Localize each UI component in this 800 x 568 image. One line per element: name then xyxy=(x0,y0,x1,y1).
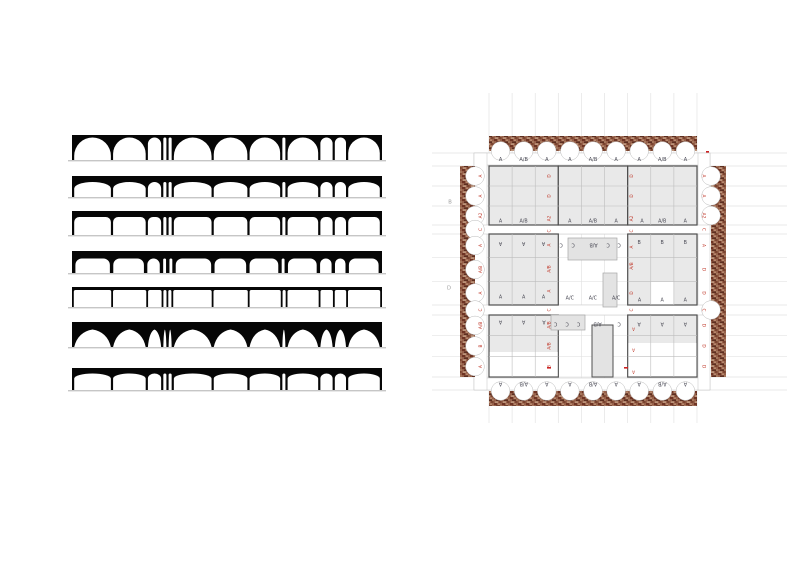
plan-label: A2 xyxy=(701,213,707,219)
plan-label: A xyxy=(478,174,484,177)
arch-opening xyxy=(335,259,346,274)
plan-label: A/C xyxy=(566,296,575,302)
plan-label: D xyxy=(447,286,451,292)
arch-opening xyxy=(74,374,111,391)
plan-label: A xyxy=(632,326,635,332)
plan-label: C xyxy=(478,308,484,311)
red-mark xyxy=(624,367,628,369)
floor-plan: AA/BAAA/BAAA/BAAA/BAAA/BAAA/BAAAA2CAA/BA… xyxy=(430,85,790,435)
arch-opening xyxy=(163,374,166,390)
arch-opening xyxy=(148,182,161,197)
arch-opening xyxy=(148,217,161,235)
arch-opening xyxy=(320,290,332,307)
strip-baseline xyxy=(68,307,386,308)
arch-opening xyxy=(148,374,161,391)
arch-profile-strip-6-tented-arches xyxy=(68,322,386,350)
arch-opening xyxy=(213,290,247,307)
arch-opening xyxy=(163,182,166,197)
room-white-area xyxy=(490,352,558,376)
arch-opening xyxy=(113,290,146,307)
plan-label: B xyxy=(661,240,664,246)
plan-label: A/B xyxy=(589,242,597,248)
plan-label: A/B xyxy=(588,381,597,387)
arch-opening xyxy=(168,290,171,307)
arch-opening xyxy=(348,374,380,390)
plan-label: A xyxy=(629,245,635,248)
plan-label: C xyxy=(701,228,707,231)
plan-label: C xyxy=(547,229,553,232)
arch-profile-strip-5-trabeated-lintel xyxy=(68,287,386,310)
plan-label: A/B xyxy=(657,381,666,387)
arch-opening xyxy=(348,182,380,197)
arch-opening xyxy=(163,217,166,235)
arch-opening xyxy=(163,290,166,307)
arch-opening xyxy=(214,374,248,391)
arch-opening xyxy=(320,217,332,235)
diagram-canvas: AA/BAAA/BAAA/BAAA/BAAA/BAAA/BAAAA2CAA/BA… xyxy=(0,0,800,568)
plan-label: A xyxy=(701,195,707,198)
plan-label: A/B xyxy=(478,322,484,329)
arch-profile-strip-3-segmental-arches xyxy=(68,211,386,238)
plan-label: A xyxy=(568,157,572,163)
plan-label: A/B xyxy=(519,219,527,225)
courtyard-structure xyxy=(603,273,617,307)
plan-label: A/C xyxy=(589,296,598,302)
strip-baseline xyxy=(68,390,386,391)
plan-label: B xyxy=(637,240,640,246)
arch-profile-strip-1-semicircular-arches xyxy=(68,135,386,163)
arch-opening xyxy=(174,217,212,235)
plan-label: A xyxy=(701,175,707,178)
plan-label: A/B xyxy=(478,266,484,273)
room-white-area xyxy=(628,343,696,376)
arch-opening xyxy=(169,182,172,197)
arch-opening xyxy=(75,259,109,274)
plan-label: A/B xyxy=(547,321,553,328)
arch-opening xyxy=(169,259,172,274)
arch-opening xyxy=(288,217,319,235)
arch-opening xyxy=(282,259,285,274)
plan-label: A xyxy=(545,157,549,163)
plan-label: A xyxy=(638,157,642,163)
arch-opening xyxy=(74,290,111,307)
plan-label: C xyxy=(701,308,707,311)
arch-opening xyxy=(250,290,281,307)
arch-opening xyxy=(320,374,332,390)
plan-label: A xyxy=(478,194,484,197)
arch-opening xyxy=(113,217,146,235)
arch-opening xyxy=(250,374,281,391)
plan-label: C xyxy=(547,308,553,311)
arch-opening xyxy=(288,374,319,391)
plan-label: A/B xyxy=(547,265,553,272)
arch-opening xyxy=(320,138,332,160)
arch-opening xyxy=(74,182,111,197)
arch-opening xyxy=(147,259,159,274)
plan-label: A xyxy=(632,347,635,353)
plan-label: B xyxy=(448,200,452,206)
arch-opening xyxy=(163,259,166,274)
arch-opening xyxy=(176,259,211,274)
plan-label: A xyxy=(684,157,688,163)
arch-opening xyxy=(335,374,346,391)
room-block xyxy=(558,166,627,225)
arch-opening xyxy=(148,290,162,307)
plan-label: A xyxy=(701,244,707,247)
arch-opening xyxy=(174,374,212,390)
plan-label: A xyxy=(683,381,687,387)
arch-opening xyxy=(320,259,331,274)
plan-label: A xyxy=(547,243,553,246)
strip-baseline xyxy=(68,197,386,198)
arch-profile-strip-7-shallow-arches xyxy=(68,368,386,393)
arch-profile-strips xyxy=(68,0,398,568)
arch-opening xyxy=(287,290,318,307)
arch-opening xyxy=(148,138,161,161)
plan-label: A/B xyxy=(658,219,666,225)
arch-opening xyxy=(282,374,285,390)
plan-label: C xyxy=(629,308,635,311)
plan-label: A xyxy=(498,381,502,387)
arch-opening xyxy=(282,217,285,235)
arch-opening xyxy=(335,290,346,307)
plan-label: A/C xyxy=(612,296,621,302)
plan-label: A xyxy=(478,365,484,368)
plan-label: A/B xyxy=(658,157,667,163)
plan-label: A xyxy=(499,157,503,163)
plan-label: A/B xyxy=(589,219,597,225)
room-block xyxy=(628,166,697,225)
arch-opening xyxy=(250,259,279,274)
plan-label: A xyxy=(547,289,553,292)
arch-opening xyxy=(348,217,380,235)
plan-label: A xyxy=(544,381,548,387)
arch-opening xyxy=(169,138,172,161)
plan-label: C xyxy=(629,229,635,232)
arch-opening xyxy=(282,182,285,197)
arch-opening xyxy=(335,138,346,161)
plan-label: A/B xyxy=(519,157,528,163)
arch-opening xyxy=(348,290,380,307)
plan-label: A xyxy=(614,381,618,387)
exit-corridor xyxy=(592,325,613,377)
plan-label: A xyxy=(478,244,484,247)
arch-profile-strip-2-elliptical-arches xyxy=(68,176,386,200)
arch-opening xyxy=(282,138,285,160)
plan-label: A xyxy=(568,381,572,387)
arch-opening xyxy=(113,182,146,197)
strip-baseline xyxy=(68,160,386,161)
arch-opening xyxy=(173,290,211,307)
arch-opening xyxy=(349,259,379,274)
plan-label: A/B xyxy=(547,342,553,349)
strip-baseline xyxy=(68,273,386,274)
plan-label: A/B xyxy=(589,157,598,163)
plan-label: A xyxy=(637,381,641,387)
arch-opening xyxy=(215,259,247,274)
strip-baseline xyxy=(68,347,386,348)
plan-label: A/B xyxy=(519,381,528,387)
plan-label: A2 xyxy=(547,215,553,221)
arch-opening xyxy=(169,374,172,391)
red-mark xyxy=(547,367,551,369)
arch-opening xyxy=(214,182,248,197)
plan-label: A2 xyxy=(478,212,484,218)
arch-opening xyxy=(113,374,146,391)
arch-opening xyxy=(250,217,281,235)
arch-opening xyxy=(335,217,346,235)
courtyard-structure xyxy=(568,238,617,260)
plan-label: C xyxy=(478,228,484,231)
arch-opening xyxy=(250,182,281,197)
plan-label: B xyxy=(478,344,484,347)
strip-baseline xyxy=(68,235,386,236)
arch-opening xyxy=(174,182,212,197)
arch-opening xyxy=(74,217,111,235)
arch-opening xyxy=(214,217,248,235)
red-mark xyxy=(706,151,709,153)
arch-opening xyxy=(335,182,346,197)
plan-label: A/B xyxy=(629,262,635,269)
plan-label: C xyxy=(617,321,621,327)
arch-opening xyxy=(320,182,332,197)
plan-label: A xyxy=(478,291,484,294)
arch-opening xyxy=(163,138,166,160)
plan-label: B xyxy=(684,240,687,246)
plan-label: C xyxy=(559,242,563,248)
plan-label: A2 xyxy=(629,215,635,221)
arch-opening xyxy=(283,290,286,307)
plan-label: A xyxy=(632,369,635,375)
arch-opening xyxy=(288,259,317,274)
plan-label: A xyxy=(614,157,618,163)
arch-opening xyxy=(169,217,172,235)
arch-profile-strip-4-flat-arches xyxy=(68,251,386,276)
plan-label: A/B xyxy=(593,321,601,327)
arch-opening xyxy=(113,259,144,274)
arch-opening xyxy=(288,182,319,197)
